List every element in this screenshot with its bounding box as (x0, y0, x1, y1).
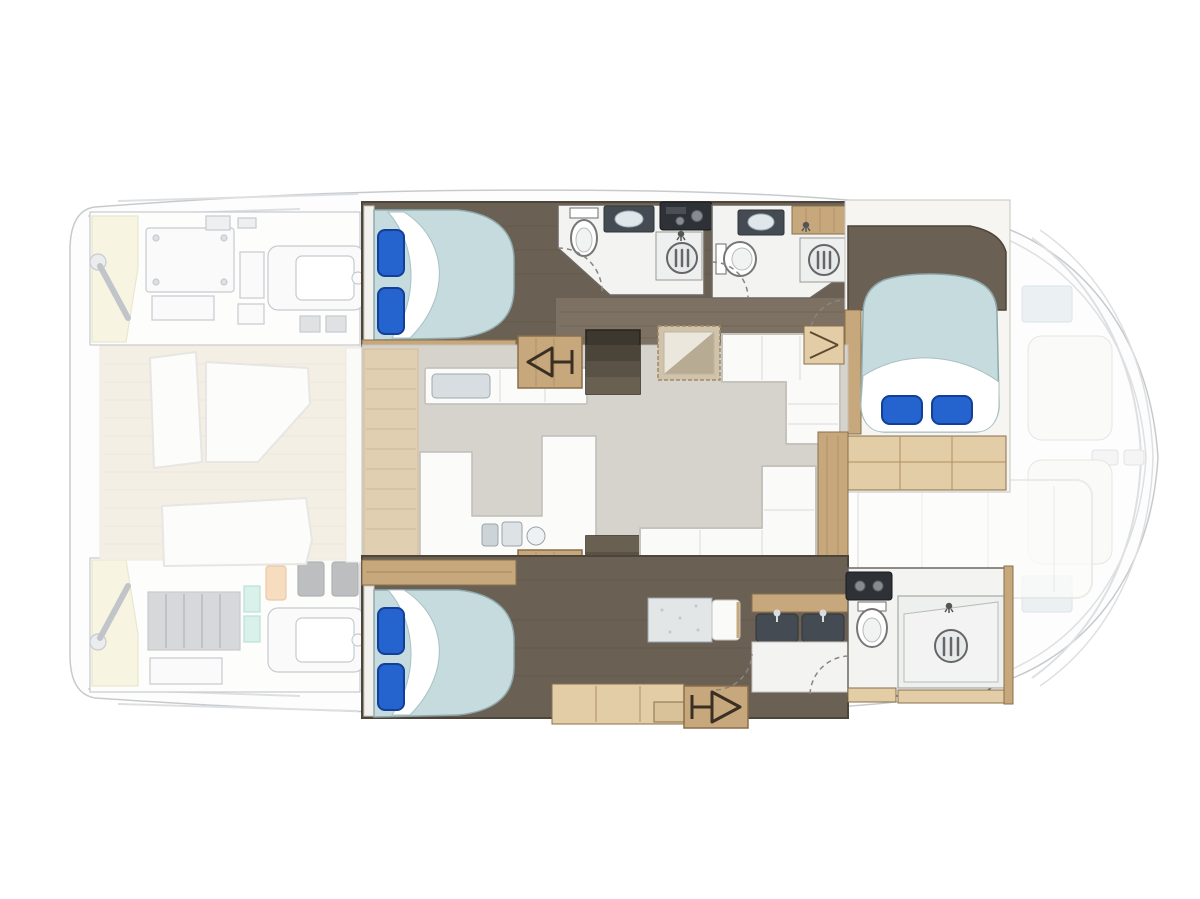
cup (527, 527, 545, 545)
port-aft-berth (362, 206, 516, 367)
deck-hatch (1022, 286, 1072, 322)
pillow (932, 396, 972, 424)
vanity-top (752, 594, 848, 612)
port-companionway (518, 330, 640, 394)
headboard (364, 586, 374, 716)
vanity-floor (752, 642, 848, 692)
slatted-bench (848, 436, 1006, 490)
corner-locker (804, 326, 844, 364)
starboard-engine-room (90, 558, 364, 692)
desk-area (648, 598, 740, 642)
head-wall (1004, 566, 1013, 704)
wardrobe (552, 684, 684, 724)
basin (615, 211, 643, 227)
port-engine-room (90, 212, 364, 345)
sun-pad (1028, 336, 1112, 440)
catamaran-floor-plan (0, 0, 1200, 899)
bow-cleat (1124, 450, 1144, 465)
floor-plan-stage (0, 0, 1200, 899)
basin (748, 214, 774, 230)
headboard (364, 206, 374, 344)
toilet-tank (570, 208, 598, 218)
aft-deck (100, 346, 364, 566)
cooktop-appliance (660, 202, 712, 230)
port-fwd-cabin (845, 200, 1010, 492)
bottle (502, 522, 522, 546)
galley-sink (432, 374, 490, 398)
pillow (378, 608, 404, 654)
cockpit-lounge-3 (162, 498, 312, 566)
threshold-sill (848, 688, 896, 702)
desk (648, 598, 712, 642)
dinette-table (658, 326, 720, 380)
threshold-sill (898, 690, 1004, 703)
pillow (882, 396, 922, 424)
port-fwd-head (712, 205, 848, 298)
starboard-hull (362, 556, 1013, 728)
battery-bank (148, 592, 240, 650)
desk-seat (712, 600, 740, 640)
pillow (378, 230, 404, 276)
water-heater (846, 572, 892, 600)
hanging-locker (684, 686, 748, 728)
bottle (482, 524, 498, 546)
stairs-down (586, 330, 640, 394)
aft-bulkhead (346, 348, 364, 562)
starboard-aft-berth (362, 560, 516, 717)
pillow (378, 288, 404, 334)
cockpit-lounge-1 (150, 352, 202, 468)
starboard-fwd-head (846, 566, 1013, 704)
entry-wood-strip (364, 349, 418, 556)
pillow (378, 664, 404, 710)
twin-vanity (752, 594, 848, 692)
